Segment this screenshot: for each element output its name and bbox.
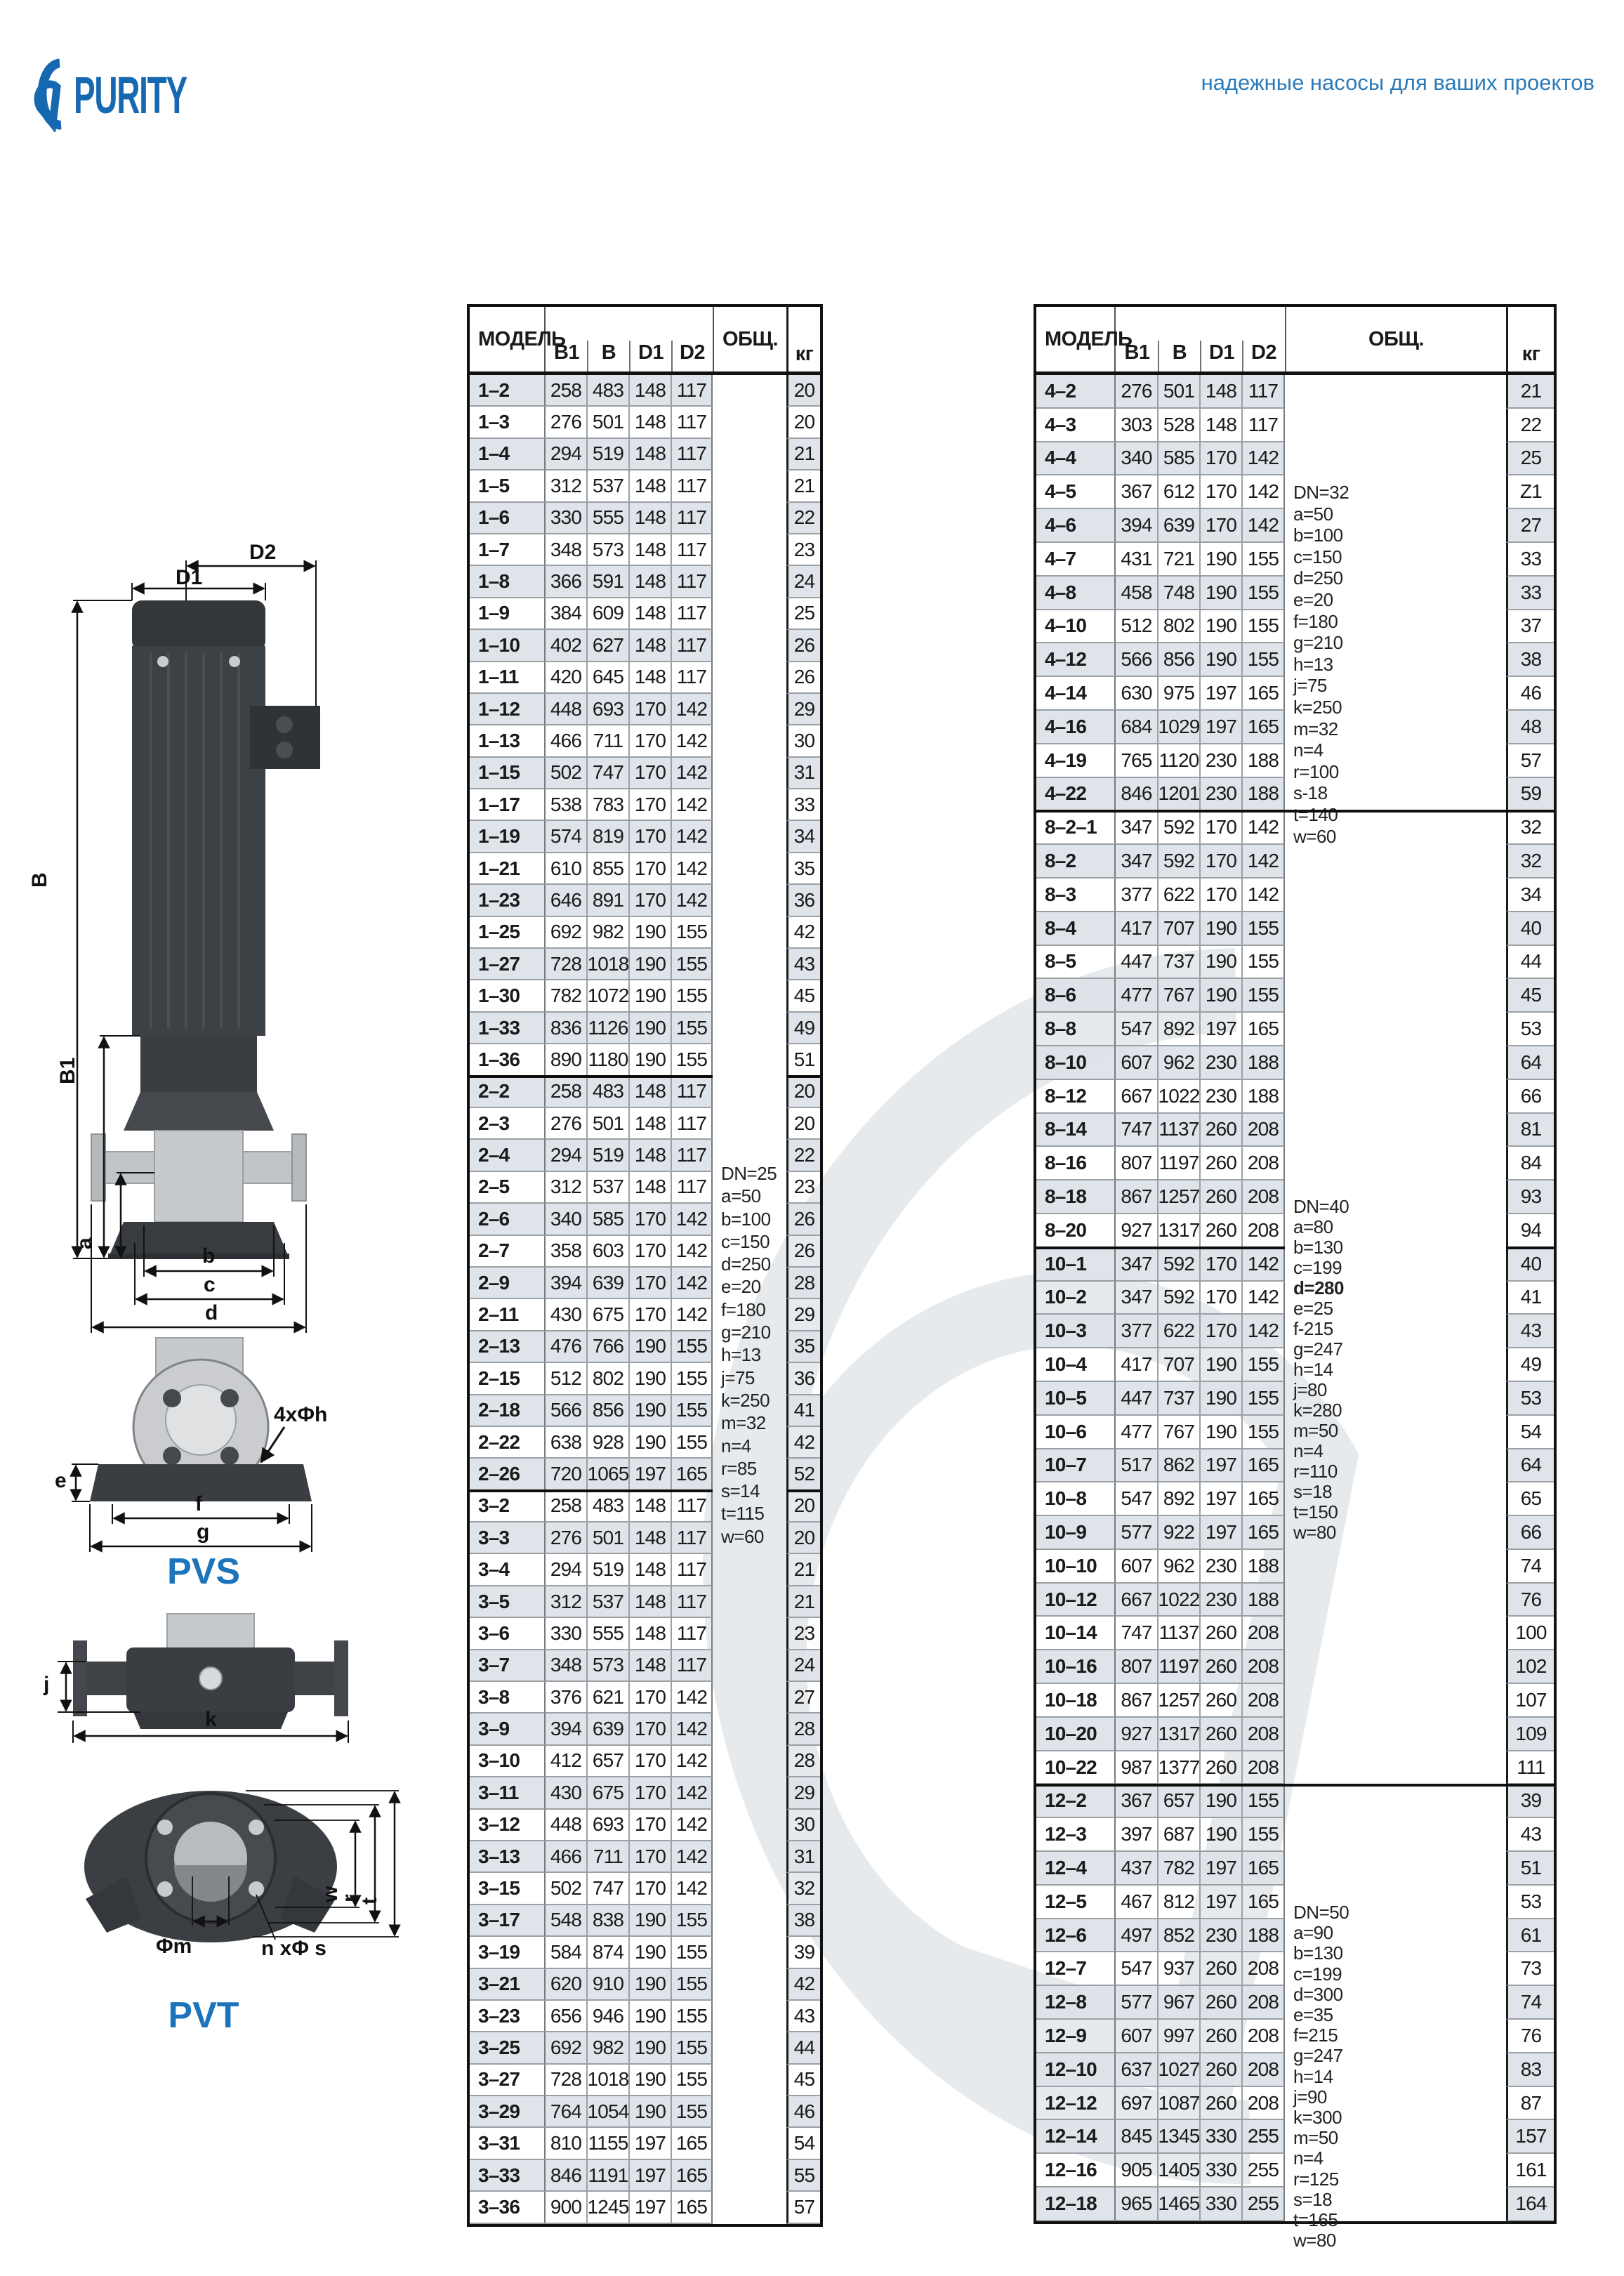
value-cell-d2: 142 xyxy=(672,1682,713,1713)
model-cell: 2–11 xyxy=(470,1299,546,1331)
note-line: d=250 xyxy=(721,1253,781,1275)
value-cell-d1: 170 xyxy=(630,694,672,725)
header-divider xyxy=(629,341,631,371)
weight-cell: 25 xyxy=(1506,442,1554,476)
value-cell-d2: 142 xyxy=(1243,879,1285,912)
weight-cell: 42 xyxy=(786,917,820,949)
common-dimensions-notes: DN=25a=50b=100c=150d=250e=20f=180g=210h=… xyxy=(721,1162,781,1548)
weight-cell: 24 xyxy=(786,566,820,598)
model-cell: 12–10 xyxy=(1036,2053,1116,2087)
common-dims-spacer xyxy=(1285,1147,1506,1180)
value-cell-b: 982 xyxy=(588,917,630,949)
common-dims-spacer xyxy=(713,1554,786,1586)
weight-cell: 38 xyxy=(1506,643,1554,677)
value-cell-b: 483 xyxy=(588,1077,630,1108)
value-cell-d2: 117 xyxy=(672,1491,713,1522)
model-cell: 10–5 xyxy=(1036,1382,1116,1416)
weight-cell: 42 xyxy=(786,1969,820,2001)
value-cell-d1: 260 xyxy=(1201,2087,1243,2121)
weight-cell: 20 xyxy=(786,375,820,407)
model-cell: 8–18 xyxy=(1036,1180,1116,1214)
value-cell-d1: 230 xyxy=(1201,1919,1243,1953)
value-cell-d2: 155 xyxy=(1243,1382,1285,1416)
value-cell-d2: 188 xyxy=(1243,1584,1285,1617)
logo-text: PURITY xyxy=(74,65,187,125)
value-cell-d1: 170 xyxy=(1201,811,1243,845)
weight-cell: Z1 xyxy=(1506,475,1554,509)
table-row: 1–1040262714811726 xyxy=(470,630,820,662)
value-cell-b1: 728 xyxy=(546,949,588,980)
model-cell: 1–23 xyxy=(470,885,546,916)
value-cell-d1: 170 xyxy=(1201,475,1243,509)
value-cell-d2: 155 xyxy=(1243,1784,1285,1818)
value-cell-d1: 190 xyxy=(1201,912,1243,946)
value-cell-b1: 437 xyxy=(1116,1852,1158,1886)
common-dims-spacer xyxy=(1285,1650,1506,1684)
weight-cell: 30 xyxy=(786,1810,820,1841)
value-cell-d2: 142 xyxy=(672,821,713,853)
value-cell-d2: 155 xyxy=(672,2065,713,2096)
common-dims-spacer xyxy=(1285,1114,1506,1147)
note-line: b=100 xyxy=(1293,525,1500,546)
value-cell-d1: 170 xyxy=(1201,879,1243,912)
value-cell-b1: 692 xyxy=(546,2032,588,2064)
dim-label-a: a xyxy=(73,1237,97,1249)
value-cell-b1: 905 xyxy=(1116,2154,1158,2188)
value-cell-d1: 197 xyxy=(1201,1886,1243,1919)
dimension-table-left: МОДЕЛЬB1BD1D2ОБЩ.кг1–2258483148117201–32… xyxy=(467,304,823,2227)
common-dims-spacer xyxy=(713,2160,786,2192)
note-line: g=247 xyxy=(1293,1339,1500,1360)
value-cell-d1: 170 xyxy=(630,1810,672,1841)
value-cell-d1: 330 xyxy=(1201,2188,1243,2221)
value-cell-b1: 667 xyxy=(1116,1584,1158,1617)
weight-cell: 53 xyxy=(1506,1382,1554,1416)
note-line: f=215 xyxy=(1293,2025,1500,2046)
table-row: 2–225848314811720 xyxy=(470,1077,820,1108)
weight-cell: 76 xyxy=(1506,2020,1554,2053)
weight-cell: 64 xyxy=(1506,1449,1554,1483)
value-cell-b: 573 xyxy=(588,1650,630,1682)
value-cell-d1: 170 xyxy=(630,1299,672,1331)
common-dims-spacer xyxy=(713,694,786,725)
value-cell-d2: 208 xyxy=(1243,1214,1285,1248)
value-cell-b: 910 xyxy=(588,1969,630,2001)
common-dims-spacer xyxy=(1285,1852,1506,1886)
table-row: 1–938460914811725 xyxy=(470,598,820,630)
value-cell-d2: 155 xyxy=(672,949,713,980)
weight-cell: 45 xyxy=(786,2065,820,2096)
weight-cell: 51 xyxy=(1506,1852,1554,1886)
value-cell-d1: 190 xyxy=(630,1427,672,1459)
value-cell-b: 975 xyxy=(1158,677,1201,711)
note-line: w=80 xyxy=(1293,1522,1500,1543)
note-line: b=130 xyxy=(1293,1943,1500,1963)
value-cell-b: 627 xyxy=(588,630,630,662)
value-cell-b: 693 xyxy=(588,1810,630,1841)
note-line: t=150 xyxy=(1293,1502,1500,1522)
value-cell-b1: 548 xyxy=(546,1905,588,1937)
value-cell-d1: 170 xyxy=(630,853,672,885)
value-cell-b: 1054 xyxy=(588,2096,630,2128)
weight-cell: 59 xyxy=(1506,778,1554,812)
weight-cell: 43 xyxy=(1506,1315,1554,1348)
value-cell-b1: 512 xyxy=(1116,610,1158,644)
model-cell: 10–3 xyxy=(1036,1315,1116,1348)
table-row: 3–27728101819015545 xyxy=(470,2065,820,2096)
value-cell-b1: 547 xyxy=(1116,1482,1158,1516)
model-cell: 12–2 xyxy=(1036,1784,1116,1818)
model-cell: 3–2 xyxy=(470,1491,546,1522)
common-dims-spacer xyxy=(713,853,786,885)
value-cell-d1: 190 xyxy=(630,1363,672,1395)
common-dims-spacer xyxy=(713,439,786,471)
common-dims-spacer xyxy=(1285,1046,1506,1080)
table-row: 3–1754883819015538 xyxy=(470,1905,820,1937)
table-row: 1–1244869317014229 xyxy=(470,694,820,725)
value-cell-b1: 430 xyxy=(546,1299,588,1331)
note-line: m=32 xyxy=(721,1412,781,1434)
common-dims-spacer xyxy=(713,1937,786,1968)
model-cell: 3–9 xyxy=(470,1713,546,1745)
weight-cell: 28 xyxy=(786,1268,820,1299)
model-cell: 3–29 xyxy=(470,2096,546,2128)
note-line: j=90 xyxy=(1293,2087,1500,2107)
common-dims-spacer xyxy=(713,1810,786,1841)
weight-cell: 27 xyxy=(786,1682,820,1713)
column-header-b1: B1 xyxy=(546,307,588,371)
weight-cell: 31 xyxy=(786,1841,820,1873)
value-cell-b1: 620 xyxy=(546,1969,588,2001)
pump-diagrams: D2 D1 B B1 a b c d 4xΦh e f g PVS j k w … xyxy=(42,541,463,2086)
value-cell-b1: 312 xyxy=(546,1172,588,1204)
value-cell-d1: 170 xyxy=(630,1682,672,1713)
value-cell-b1: 574 xyxy=(546,821,588,853)
value-cell-b: 603 xyxy=(588,1236,630,1268)
value-cell-d1: 197 xyxy=(1201,711,1243,744)
value-cell-d1: 190 xyxy=(630,980,672,1012)
value-cell-b1: 348 xyxy=(546,1650,588,1682)
value-cell-b1: 846 xyxy=(546,2160,588,2192)
model-cell: 2–6 xyxy=(470,1204,546,1235)
value-cell-d1: 197 xyxy=(630,2128,672,2159)
value-cell-b: 592 xyxy=(1158,1282,1201,1315)
value-cell-d1: 148 xyxy=(630,1586,672,1618)
value-cell-d2: 142 xyxy=(672,1777,713,1809)
weight-cell: 74 xyxy=(1506,1986,1554,2020)
common-dimensions-notes: DN=50a=90b=130c=199d=300e=35f=215g=247h=… xyxy=(1293,1902,1500,2251)
model-cell: 4–22 xyxy=(1036,778,1116,812)
model-cell: 4–5 xyxy=(1036,475,1116,509)
value-cell-b: 1072 xyxy=(588,980,630,1012)
value-cell-b: 874 xyxy=(588,1937,630,1968)
model-cell: 10–9 xyxy=(1036,1516,1116,1550)
weight-cell: 32 xyxy=(1506,811,1554,845)
value-cell-b1: 467 xyxy=(1116,1886,1158,1919)
table-row: 10–12667102223018876 xyxy=(1036,1584,1554,1617)
value-cell-d2: 165 xyxy=(1243,1886,1285,1919)
note-line: DN=50 xyxy=(1293,1902,1500,1923)
header-divider xyxy=(587,341,588,371)
common-dims-spacer xyxy=(713,2096,786,2128)
column-header-kg: кг xyxy=(786,307,820,371)
note-line: f=180 xyxy=(721,1298,781,1321)
table-header: МОДЕЛЬB1BD1D2ОБЩ.кг xyxy=(470,307,820,375)
common-dims-spacer xyxy=(1285,1751,1506,1785)
model-cell: 8–2–1 xyxy=(1036,811,1116,845)
value-cell-d2: 117 xyxy=(672,471,713,502)
note-line: r=110 xyxy=(1293,1461,1500,1482)
weight-cell: 39 xyxy=(786,1937,820,1968)
value-cell-d2: 117 xyxy=(672,375,713,407)
weight-cell: 45 xyxy=(1506,979,1554,1013)
model-cell: 12–9 xyxy=(1036,2020,1116,2053)
model-cell: 1–5 xyxy=(470,471,546,502)
model-cell: 2–5 xyxy=(470,1172,546,1204)
value-cell-b1: 684 xyxy=(1116,711,1158,744)
common-dims-spacer xyxy=(713,1618,786,1650)
value-cell-b: 585 xyxy=(1158,442,1201,476)
value-cell-d2: 155 xyxy=(672,1937,713,1968)
table-row: 8–544773719015544 xyxy=(1036,946,1554,980)
value-cell-d2: 155 xyxy=(672,1905,713,1937)
weight-cell: 44 xyxy=(786,2032,820,2064)
value-cell-d1: 170 xyxy=(630,821,672,853)
value-cell-b1: 538 xyxy=(546,789,588,821)
note-line: s=18 xyxy=(1293,2190,1500,2210)
table-row: 1–734857314811723 xyxy=(470,534,820,566)
column-header-d2: D2 xyxy=(672,307,713,371)
value-cell-b: 483 xyxy=(588,1491,630,1522)
weight-cell: 43 xyxy=(786,2001,820,2032)
table-row: 1–327650114811720 xyxy=(470,407,820,438)
value-cell-d1: 190 xyxy=(630,1331,672,1363)
common-dims-spacer xyxy=(713,630,786,662)
value-cell-d2: 155 xyxy=(672,1013,713,1044)
model-cell: 10–14 xyxy=(1036,1617,1116,1650)
note-line: h=14 xyxy=(1293,2067,1500,2087)
column-header-obsh: ОБЩ. xyxy=(713,307,786,371)
value-cell-b1: 394 xyxy=(1116,509,1158,543)
common-dims-spacer xyxy=(1285,1784,1506,1818)
value-cell-d1: 148 xyxy=(630,566,672,598)
value-cell-d1: 170 xyxy=(630,1204,672,1235)
weight-cell: 53 xyxy=(1506,1886,1554,1919)
value-cell-d2: 208 xyxy=(1243,1684,1285,1718)
common-dims-spacer xyxy=(1285,946,1506,980)
weight-cell: 66 xyxy=(1506,1080,1554,1114)
value-cell-b: 1022 xyxy=(1158,1080,1201,1114)
value-cell-d2: 208 xyxy=(1243,1617,1285,1650)
table-row: 8–12667102223018866 xyxy=(1036,1080,1554,1114)
column-header-b: B xyxy=(1158,307,1201,371)
note-line: DN=25 xyxy=(721,1162,781,1185)
value-cell-b: 501 xyxy=(588,1522,630,1554)
value-cell-b1: 965 xyxy=(1116,2188,1158,2221)
value-cell-b1: 466 xyxy=(546,725,588,757)
value-cell-b1: 347 xyxy=(1116,1282,1158,1315)
value-cell-d2: 117 xyxy=(672,598,713,630)
model-cell: 10–4 xyxy=(1036,1348,1116,1382)
value-cell-d2: 188 xyxy=(1243,1080,1285,1114)
model-cell: 10–2 xyxy=(1036,1282,1116,1315)
value-cell-b1: 377 xyxy=(1116,1315,1158,1348)
value-cell-b: 537 xyxy=(588,471,630,502)
value-cell-b1: 646 xyxy=(546,885,588,916)
value-cell-b: 483 xyxy=(588,375,630,407)
dim-label-e: e xyxy=(55,1469,67,1493)
value-cell-d2: 142 xyxy=(1243,811,1285,845)
value-cell-d1: 170 xyxy=(1201,1248,1243,1282)
model-cell: 1–25 xyxy=(470,917,546,949)
table-row: 4–330352814811722 xyxy=(1036,409,1554,442)
value-cell-d2: 188 xyxy=(1243,1046,1285,1080)
table-row: 3–2162091019015542 xyxy=(470,1969,820,2001)
value-cell-b: 1377 xyxy=(1158,1751,1201,1785)
weight-cell: 26 xyxy=(786,1236,820,1268)
value-cell-d1: 148 xyxy=(630,1108,672,1140)
model-cell: 2–22 xyxy=(470,1427,546,1459)
model-cell: 1–27 xyxy=(470,949,546,980)
weight-cell: 111 xyxy=(1506,1751,1554,1785)
weight-cell: 37 xyxy=(1506,610,1554,644)
value-cell-b1: 402 xyxy=(546,630,588,662)
value-cell-d1: 197 xyxy=(1201,1852,1243,1886)
model-cell: 8–12 xyxy=(1036,1080,1116,1114)
value-cell-b1: 547 xyxy=(1116,1013,1158,1046)
common-dims-spacer xyxy=(713,1713,786,1745)
model-cell: 1–8 xyxy=(470,566,546,598)
weight-cell: 43 xyxy=(1506,1818,1554,1852)
value-cell-b: 962 xyxy=(1158,1046,1201,1080)
value-cell-d1: 190 xyxy=(630,1937,672,1968)
weight-cell: 61 xyxy=(1506,1919,1554,1953)
value-cell-b1: 258 xyxy=(546,375,588,407)
weight-cell: 45 xyxy=(786,980,820,1012)
header-divider xyxy=(671,341,673,371)
value-cell-d2: 117 xyxy=(672,1077,713,1108)
value-cell-b: 687 xyxy=(1158,1818,1201,1852)
common-dims-spacer xyxy=(1285,442,1506,476)
model-cell: 3–23 xyxy=(470,2001,546,2032)
value-cell-b1: 697 xyxy=(1116,2087,1158,2121)
value-cell-b1: 477 xyxy=(1116,979,1158,1013)
note-line: e=20 xyxy=(721,1275,781,1298)
value-cell-d2: 117 xyxy=(672,1172,713,1204)
value-cell-b: 1257 xyxy=(1158,1180,1201,1214)
logo-swirl-icon xyxy=(25,58,70,132)
note-line: k=280 xyxy=(1293,1400,1500,1421)
common-dims-spacer xyxy=(713,2192,786,2223)
note-line: c=150 xyxy=(721,1230,781,1253)
value-cell-d1: 190 xyxy=(1201,979,1243,1013)
value-cell-b: 1087 xyxy=(1158,2087,1201,2121)
common-dims-spacer xyxy=(1285,1550,1506,1584)
common-dimensions-notes: DN=40a=80b=130c=199d=280e=25f-215g=247h=… xyxy=(1293,1197,1500,1543)
column-header-d2: D2 xyxy=(1243,307,1285,371)
weight-cell: 29 xyxy=(786,1299,820,1331)
value-cell-d2: 155 xyxy=(1243,610,1285,644)
value-cell-d1: 197 xyxy=(1201,1449,1243,1483)
common-dims-spacer xyxy=(713,1969,786,2001)
value-cell-d1: 230 xyxy=(1201,744,1243,778)
common-dims-spacer xyxy=(713,949,786,980)
note-line: n=4 xyxy=(721,1435,781,1457)
weight-cell: 23 xyxy=(786,1172,820,1204)
table-row: 8–1060796223018864 xyxy=(1036,1046,1554,1080)
value-cell-b: 645 xyxy=(588,662,630,694)
value-cell-b1: 577 xyxy=(1116,1986,1158,2020)
common-dims-spacer xyxy=(713,1746,786,1777)
value-cell-b: 711 xyxy=(588,725,630,757)
weight-cell: 23 xyxy=(786,534,820,566)
model-cell: 10–18 xyxy=(1036,1684,1116,1718)
dim-label-d2: D2 xyxy=(249,541,276,565)
value-cell-d2: 142 xyxy=(672,1746,713,1777)
value-cell-b: 1257 xyxy=(1158,1684,1201,1718)
value-cell-d1: 260 xyxy=(1201,1114,1243,1147)
dim-label-bolt: 4xΦh xyxy=(274,1403,327,1427)
value-cell-d2: 117 xyxy=(672,534,713,566)
dim-label-d: d xyxy=(205,1301,218,1325)
note-line: r=85 xyxy=(721,1457,781,1480)
table-row: 12–339768719015543 xyxy=(1036,1818,1554,1852)
note-line: s-18 xyxy=(1293,782,1500,804)
value-cell-b1: 397 xyxy=(1116,1818,1158,1852)
value-cell-d2: 142 xyxy=(1243,475,1285,509)
value-cell-b1: 517 xyxy=(1116,1449,1158,1483)
value-cell-d2: 142 xyxy=(1243,1282,1285,1315)
model-cell: 3–4 xyxy=(470,1554,546,1586)
value-cell-b: 591 xyxy=(588,566,630,598)
model-cell: 2–26 xyxy=(470,1459,546,1490)
table-row: 10–147471137260208100 xyxy=(1036,1617,1554,1650)
table-row: 1–1550274717014231 xyxy=(470,758,820,789)
value-cell-d1: 190 xyxy=(1201,1818,1243,1852)
value-cell-d1: 260 xyxy=(1201,1214,1243,1248)
model-cell: 1–9 xyxy=(470,598,546,630)
weight-cell: 66 xyxy=(1506,1516,1554,1550)
value-cell-b: 1137 xyxy=(1158,1617,1201,1650)
weight-cell: 54 xyxy=(1506,1416,1554,1449)
value-cell-d2: 165 xyxy=(1243,677,1285,711)
value-cell-d2: 155 xyxy=(672,1427,713,1459)
table-row: 10–209271317260208109 xyxy=(1036,1718,1554,1751)
note-line: k=250 xyxy=(721,1389,781,1412)
value-cell-d2: 155 xyxy=(672,1331,713,1363)
weight-cell: 49 xyxy=(786,1013,820,1044)
model-cell: 12–18 xyxy=(1036,2188,1116,2221)
table-row: 1–30782107219015545 xyxy=(470,980,820,1012)
value-cell-d1: 190 xyxy=(1201,543,1243,577)
weight-cell: 93 xyxy=(1506,1180,1554,1214)
dim-label-f: f xyxy=(195,1492,202,1516)
dim-label-b-total: B xyxy=(28,872,52,888)
table-row: 3–1346671117014231 xyxy=(470,1841,820,1873)
value-cell-b: 838 xyxy=(588,1905,630,1937)
note-line: r=100 xyxy=(1293,761,1500,783)
column-header-obsh: ОБЩ. xyxy=(1285,307,1506,371)
weight-cell: 55 xyxy=(786,2160,820,2192)
table-row: 3–531253714811721 xyxy=(470,1586,820,1618)
table-row: 4–227650114811721 xyxy=(1036,375,1554,409)
value-cell-b1: 447 xyxy=(1116,1382,1158,1416)
common-dims-spacer xyxy=(1285,1584,1506,1617)
column-header-model: МОДЕЛЬ xyxy=(1036,307,1116,371)
value-cell-b1: 782 xyxy=(546,980,588,1012)
value-cell-d2: 165 xyxy=(1243,1482,1285,1516)
value-cell-d2: 142 xyxy=(1243,845,1285,879)
